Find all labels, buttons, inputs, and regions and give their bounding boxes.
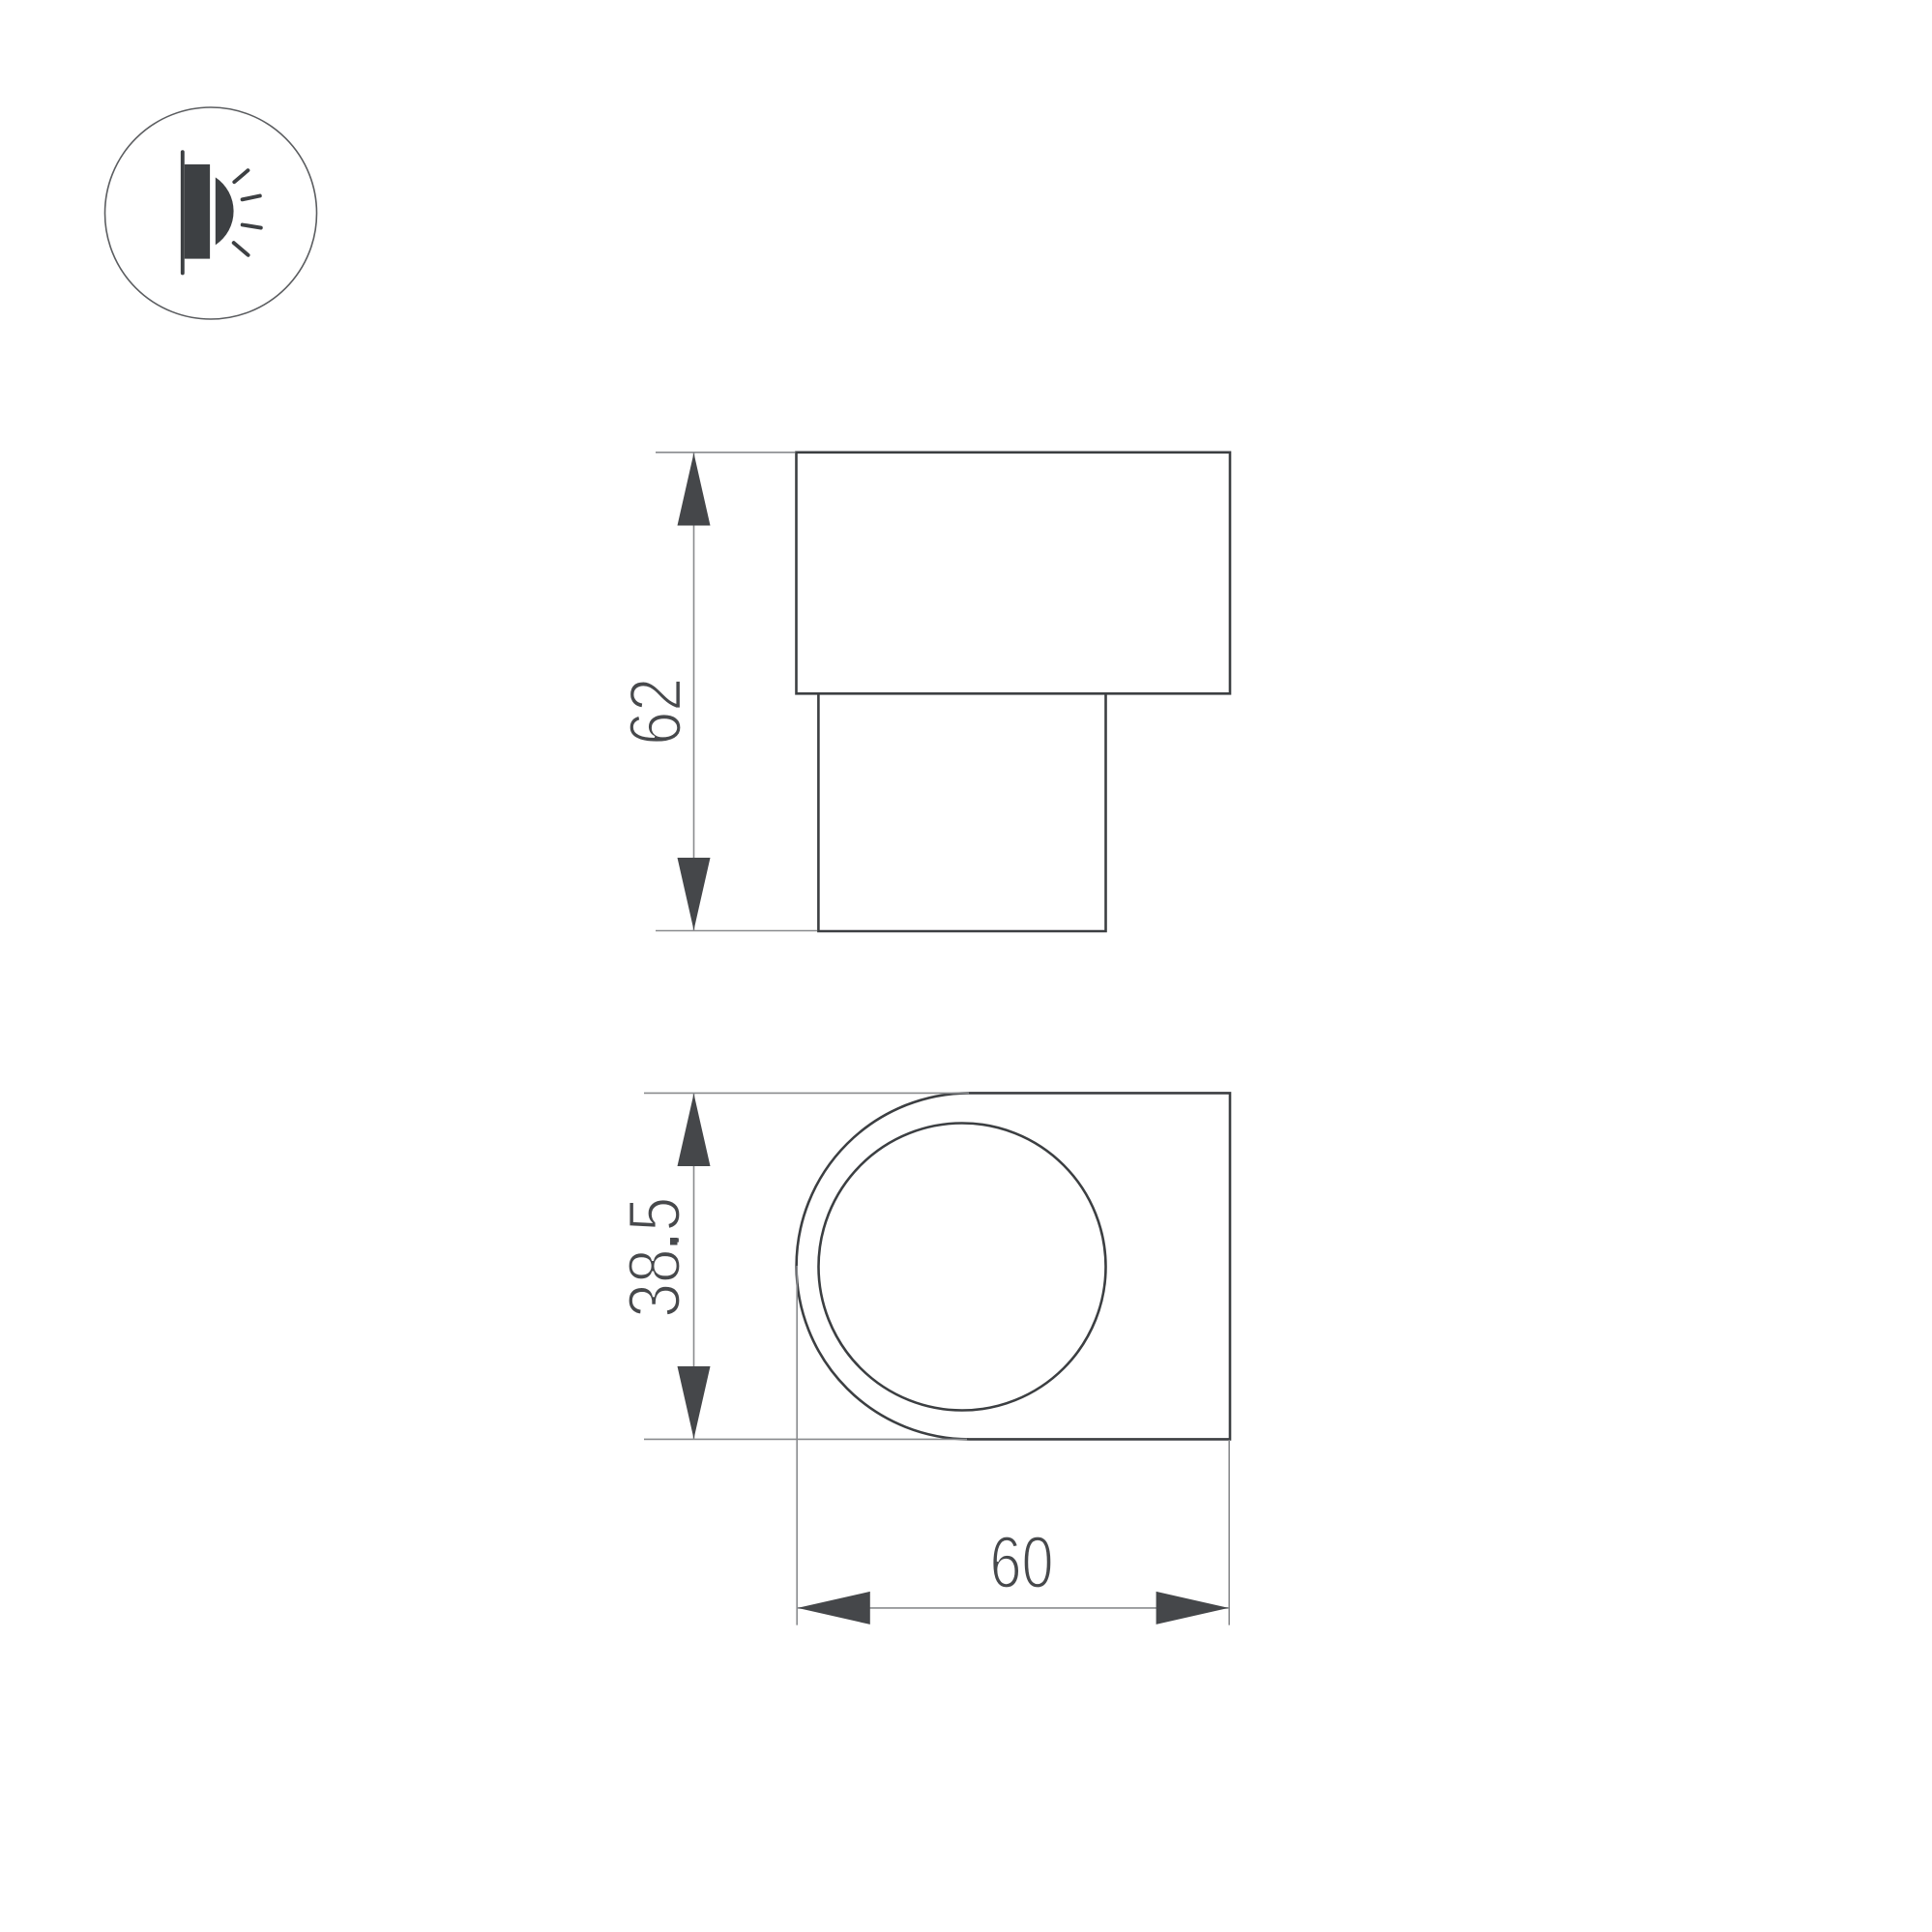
svg-text:60: 60 — [990, 1522, 1054, 1604]
svg-text:38.5: 38.5 — [614, 1197, 696, 1318]
svg-text:62: 62 — [615, 678, 697, 746]
